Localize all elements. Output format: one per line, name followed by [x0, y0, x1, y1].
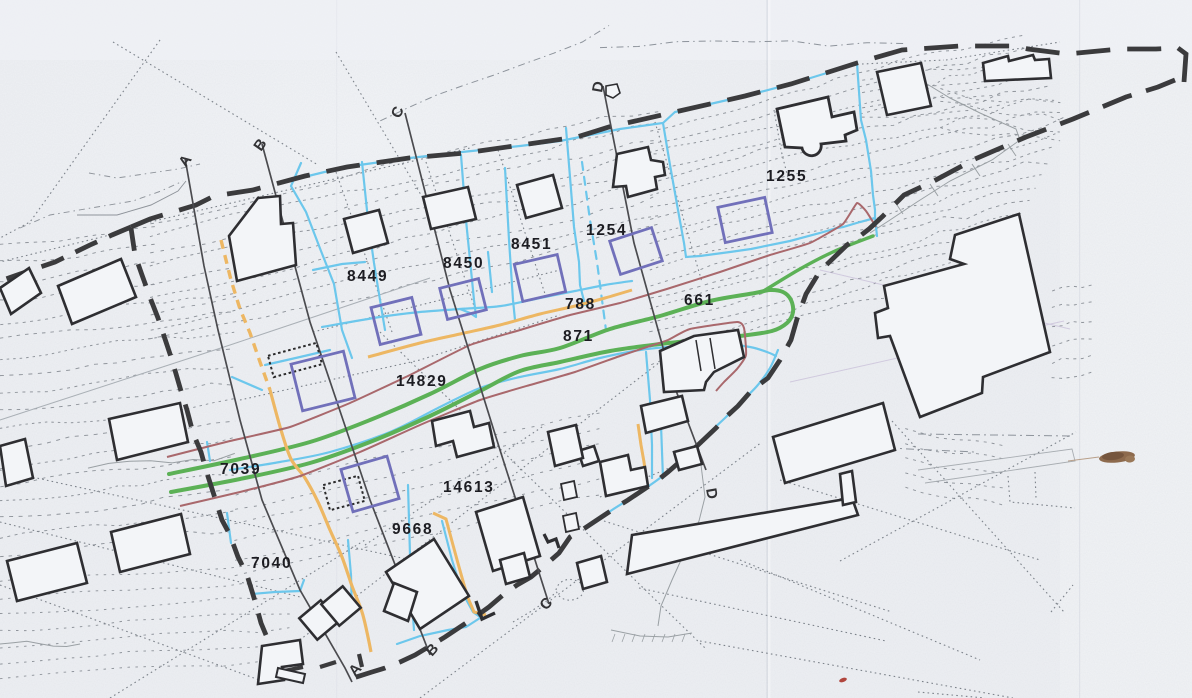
svg-text:9668: 9668	[392, 521, 433, 538]
svg-text:788: 788	[565, 296, 596, 313]
svg-text:1254: 1254	[586, 222, 627, 239]
svg-text:14613: 14613	[443, 479, 495, 496]
svg-text:871: 871	[563, 328, 594, 345]
svg-text:7040: 7040	[251, 555, 292, 572]
svg-text:661: 661	[684, 292, 715, 309]
svg-text:7039: 7039	[220, 461, 261, 478]
svg-text:1255: 1255	[766, 168, 807, 185]
svg-text:8451: 8451	[511, 236, 552, 253]
svg-text:8450: 8450	[443, 255, 484, 272]
svg-text:8449: 8449	[347, 268, 388, 285]
svg-text:14829: 14829	[396, 373, 448, 390]
